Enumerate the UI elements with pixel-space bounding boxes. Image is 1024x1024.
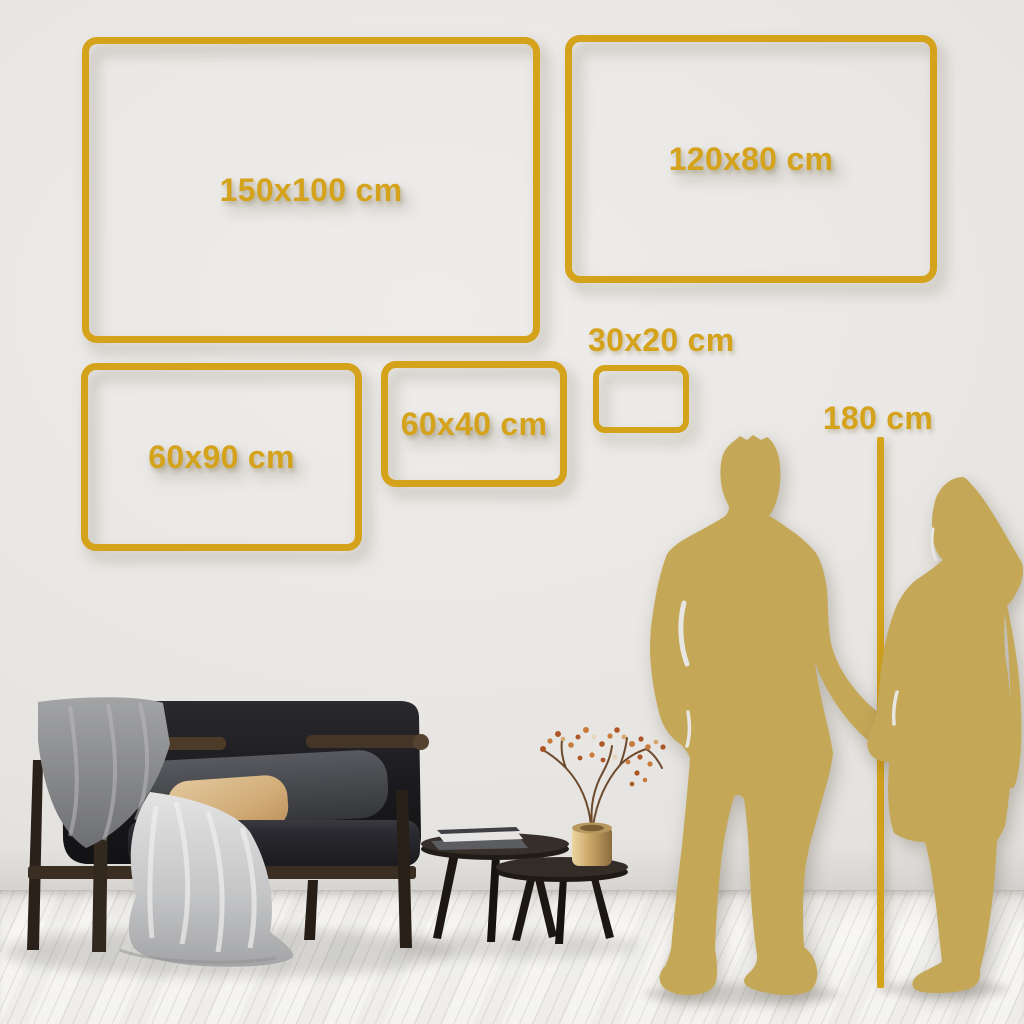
room-scene-illustration xyxy=(0,0,1024,1024)
man-silhouette xyxy=(650,435,891,995)
woman-silhouette xyxy=(867,477,1023,993)
berries xyxy=(540,727,666,786)
coffee-tables-illustration xyxy=(421,727,666,944)
books-illustration xyxy=(431,827,528,850)
sofa-illustration xyxy=(27,697,429,966)
size-guide-image: 150x100 cm 120x80 cm 60x90 cm 60x40 cm 3… xyxy=(0,0,1024,1024)
